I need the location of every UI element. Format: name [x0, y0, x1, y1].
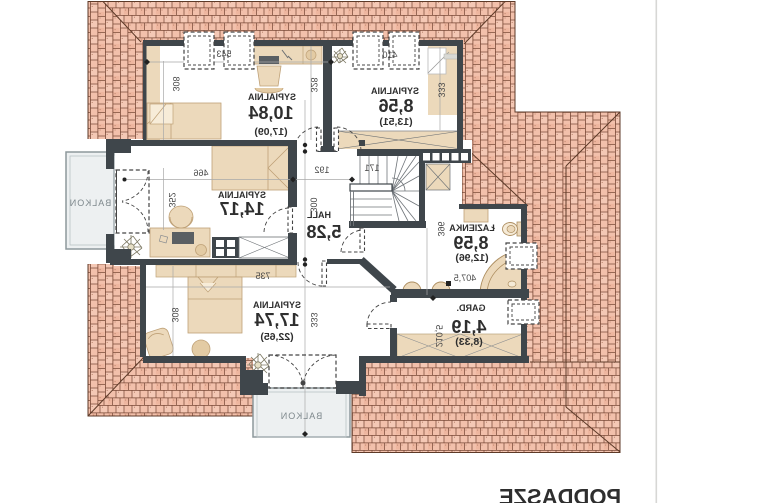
svg-text:8,56: 8,56	[378, 96, 413, 116]
svg-text:PODDASZE: PODDASZE	[499, 485, 621, 503]
svg-text:396: 396	[436, 221, 446, 236]
svg-text:8,59: 8,59	[453, 233, 488, 253]
svg-text:308: 308	[171, 76, 181, 91]
svg-text:10,84: 10,84	[248, 103, 293, 123]
svg-text:(22,65): (22,65)	[260, 331, 293, 343]
svg-text:543: 543	[216, 49, 231, 59]
svg-text:4,19: 4,19	[451, 317, 486, 337]
svg-text:SYPIALNIA: SYPIALNIA	[253, 300, 302, 310]
svg-text:466: 466	[193, 168, 208, 178]
svg-text:17,74: 17,74	[254, 310, 299, 330]
svg-text:(17,09): (17,09)	[254, 126, 287, 138]
svg-text:352: 352	[167, 192, 177, 207]
svg-text:171: 171	[364, 163, 379, 173]
svg-text:(13,51): (13,51)	[379, 116, 412, 128]
svg-text:BALKON: BALKON	[69, 198, 112, 208]
svg-text:14,17: 14,17	[219, 199, 264, 219]
svg-text:407,5: 407,5	[454, 273, 477, 283]
svg-text:308: 308	[170, 307, 180, 322]
svg-text:5,28: 5,28	[306, 222, 341, 242]
svg-text:192: 192	[314, 165, 329, 175]
svg-text:SYPIALNIA: SYPIALNIA	[371, 86, 420, 96]
svg-text:(8,33): (8,33)	[455, 336, 482, 348]
svg-text:333: 333	[437, 82, 447, 97]
svg-text:300: 300	[309, 197, 319, 212]
svg-text:(12,96): (12,96)	[455, 252, 488, 264]
svg-text:210,5: 210,5	[434, 325, 444, 348]
svg-text:328: 328	[309, 77, 319, 92]
svg-text:SYPIALNIA: SYPIALNIA	[248, 92, 297, 102]
svg-text:333: 333	[309, 312, 319, 327]
svg-text:735: 735	[255, 271, 270, 281]
svg-text:BALKON: BALKON	[280, 411, 323, 421]
svg-text:GARD.: GARD.	[457, 303, 486, 313]
svg-text:410: 410	[382, 50, 397, 60]
svg-text:ŁAZIENKA: ŁAZIENKA	[449, 223, 495, 233]
